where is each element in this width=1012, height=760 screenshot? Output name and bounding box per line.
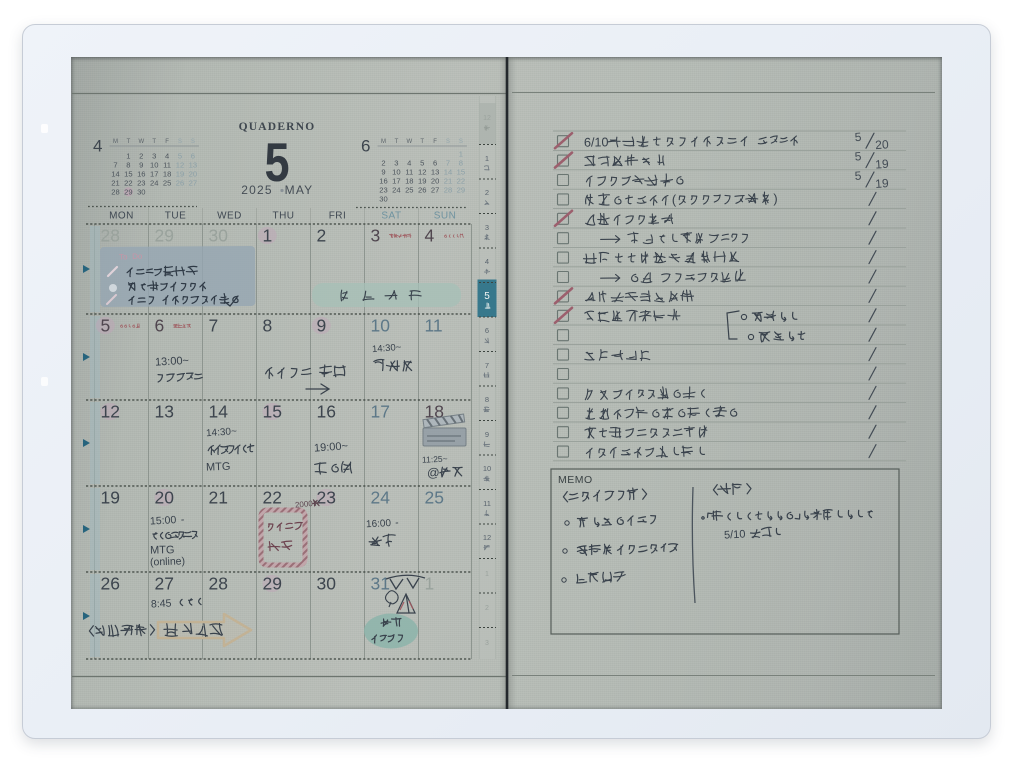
svg-text:20: 20 (875, 137, 890, 152)
svg-text:5: 5 (854, 149, 862, 163)
svg-text:18: 18 (163, 170, 171, 179)
svg-text:5: 5 (101, 316, 111, 336)
svg-text:30: 30 (317, 574, 337, 594)
svg-text:1: 1 (485, 154, 489, 163)
svg-text:23: 23 (137, 179, 145, 188)
svg-text:22: 22 (263, 488, 282, 508)
svg-text:13:00~: 13:00~ (155, 355, 190, 369)
svg-text:M: M (381, 139, 386, 145)
svg-text:27: 27 (155, 574, 174, 594)
svg-text:26: 26 (101, 574, 120, 594)
svg-text:8: 8 (263, 316, 273, 336)
svg-text:28: 28 (101, 226, 120, 246)
svg-text:9: 9 (317, 316, 327, 336)
svg-text:6: 6 (433, 159, 437, 168)
svg-text:S: S (459, 139, 463, 145)
svg-text:3: 3 (371, 226, 381, 246)
svg-text:9: 9 (485, 430, 489, 439)
svg-text:): ) (773, 191, 778, 206)
svg-text:15: 15 (457, 168, 465, 177)
svg-text:8: 8 (485, 395, 489, 404)
svg-text:2: 2 (317, 226, 327, 246)
svg-text:T: T (395, 139, 399, 145)
svg-text:21: 21 (209, 488, 228, 508)
svg-text:22: 22 (124, 179, 132, 188)
svg-text:5/10: 5/10 (724, 528, 746, 541)
svg-text:2: 2 (485, 605, 489, 612)
svg-text:@: @ (427, 466, 440, 480)
svg-text:T: T (420, 139, 424, 145)
svg-text:TUE: TUE (165, 211, 187, 222)
svg-text:6: 6 (485, 326, 489, 335)
svg-text:17: 17 (392, 177, 400, 186)
svg-text:11:25~: 11:25~ (422, 453, 448, 464)
svg-text:22: 22 (457, 177, 465, 186)
svg-text:10: 10 (483, 464, 491, 473)
svg-text:12: 12 (483, 115, 491, 122)
svg-text:10: 10 (392, 168, 400, 177)
svg-text:1: 1 (425, 574, 435, 594)
svg-text:24: 24 (150, 179, 158, 188)
svg-text:16: 16 (137, 170, 145, 179)
svg-text:29: 29 (457, 186, 465, 195)
svg-text:4: 4 (407, 159, 411, 168)
svg-text:19:00~: 19:00~ (314, 440, 349, 454)
svg-text:24: 24 (392, 186, 400, 195)
svg-text:5: 5 (854, 130, 862, 144)
svg-text:1: 1 (126, 152, 130, 161)
svg-text:M: M (113, 139, 118, 145)
svg-text:11: 11 (483, 499, 491, 508)
svg-text:23: 23 (379, 186, 387, 195)
svg-text:20: 20 (431, 177, 439, 186)
svg-text:31: 31 (371, 574, 390, 594)
svg-text:14: 14 (444, 168, 452, 177)
svg-text:13: 13 (431, 168, 439, 177)
svg-text:27: 27 (189, 179, 197, 188)
svg-text:2: 2 (381, 159, 385, 168)
svg-text:11: 11 (405, 168, 413, 177)
svg-text:25: 25 (405, 186, 413, 195)
svg-text:14:30~: 14:30~ (372, 342, 402, 355)
svg-text:11: 11 (425, 316, 443, 336)
svg-text:5: 5 (854, 169, 862, 183)
svg-text:MAY: MAY (285, 183, 314, 197)
svg-text:19: 19 (176, 170, 184, 179)
svg-text:(: ( (672, 192, 677, 207)
svg-text:12: 12 (418, 168, 426, 177)
svg-text:6: 6 (155, 316, 165, 336)
svg-text:8: 8 (459, 159, 463, 168)
svg-text:13: 13 (189, 161, 197, 170)
svg-text:T: T (127, 139, 131, 145)
svg-text:F: F (165, 139, 169, 145)
svg-text:29: 29 (155, 226, 174, 246)
svg-text:Do: Do (132, 252, 143, 261)
svg-text:28: 28 (209, 574, 228, 594)
svg-text:8:45: 8:45 (151, 597, 172, 610)
svg-text:15: 15 (124, 170, 132, 179)
svg-text:FRI: FRI (329, 211, 347, 222)
svg-text:T: T (152, 139, 156, 145)
svg-text:25: 25 (425, 488, 444, 508)
svg-text:MON: MON (109, 211, 134, 222)
svg-text:THU: THU (272, 211, 294, 222)
svg-text:5: 5 (420, 159, 424, 168)
svg-text:14: 14 (209, 402, 229, 422)
svg-text:1: 1 (459, 150, 463, 159)
svg-text:30: 30 (379, 195, 387, 204)
svg-text:12: 12 (483, 533, 491, 542)
svg-text:4: 4 (425, 226, 435, 246)
svg-text:10: 10 (150, 161, 158, 170)
svg-text:7: 7 (113, 161, 117, 170)
svg-text:16: 16 (379, 177, 387, 186)
svg-text:19: 19 (101, 488, 120, 508)
svg-text:MTG: MTG (206, 461, 231, 474)
svg-text:3: 3 (152, 152, 156, 161)
svg-text:4: 4 (485, 257, 489, 266)
svg-text:8: 8 (126, 161, 130, 170)
svg-text:S: S (178, 139, 182, 145)
svg-text:(online): (online) (150, 555, 185, 568)
svg-text:WED: WED (217, 211, 242, 222)
svg-text:17: 17 (150, 170, 158, 179)
svg-text:16:00: 16:00 (366, 518, 392, 530)
svg-text:21: 21 (444, 177, 452, 186)
svg-text:S: S (191, 139, 195, 145)
svg-text:W: W (406, 139, 412, 145)
svg-text:5: 5 (484, 291, 490, 302)
svg-text:21: 21 (111, 179, 119, 188)
svg-text:9: 9 (139, 161, 143, 170)
svg-text:SUN: SUN (434, 211, 457, 222)
svg-text:12: 12 (101, 402, 120, 422)
svg-text:13: 13 (155, 402, 174, 422)
svg-text:7: 7 (485, 361, 489, 370)
svg-text:25: 25 (163, 179, 171, 188)
svg-text:28: 28 (444, 186, 452, 195)
svg-text:1: 1 (485, 571, 489, 578)
svg-text:19: 19 (875, 157, 890, 172)
svg-text:MEMO: MEMO (558, 474, 593, 486)
svg-text:F: F (433, 139, 437, 145)
svg-text:30: 30 (137, 188, 145, 197)
svg-text:S: S (446, 139, 450, 145)
svg-text:3: 3 (485, 640, 489, 647)
svg-text:2025: 2025 (241, 183, 273, 197)
svg-text:10: 10 (371, 316, 391, 336)
svg-text:19: 19 (418, 177, 426, 186)
svg-text:-: - (180, 514, 185, 526)
svg-text:MTG: MTG (150, 544, 175, 556)
svg-text:2: 2 (139, 152, 143, 161)
svg-text:20: 20 (155, 488, 175, 508)
svg-text:26: 26 (176, 179, 184, 188)
svg-text:28: 28 (111, 188, 119, 197)
svg-text:14:30~: 14:30~ (206, 426, 238, 439)
svg-text:11: 11 (163, 161, 171, 170)
svg-text:14: 14 (111, 170, 119, 179)
svg-text:7: 7 (209, 316, 219, 336)
svg-text:15:00: 15:00 (150, 514, 177, 527)
svg-text:SAT: SAT (381, 211, 401, 222)
svg-text:6: 6 (191, 152, 195, 161)
svg-text:1: 1 (263, 226, 273, 246)
svg-text:16: 16 (317, 402, 336, 422)
svg-text:24: 24 (371, 488, 391, 508)
svg-text:30: 30 (209, 226, 229, 246)
svg-text:15: 15 (263, 402, 282, 422)
svg-text:29: 29 (263, 574, 282, 594)
svg-text:2000: 2000 (295, 499, 314, 510)
svg-text:27: 27 (431, 186, 439, 195)
svg-text:2: 2 (485, 188, 489, 197)
svg-text:6/10: 6/10 (584, 135, 609, 149)
svg-text:To: To (119, 252, 128, 261)
svg-text:23: 23 (317, 488, 336, 508)
svg-text:3: 3 (485, 223, 489, 232)
svg-text:12: 12 (176, 161, 184, 170)
svg-text:5: 5 (178, 152, 182, 161)
svg-text:W: W (138, 139, 144, 145)
svg-text:9: 9 (381, 168, 385, 177)
svg-text:26: 26 (418, 186, 426, 195)
svg-text:3: 3 (394, 159, 398, 168)
svg-text:-: - (395, 518, 399, 529)
svg-text:6: 6 (361, 137, 370, 156)
svg-text:7: 7 (446, 159, 450, 168)
svg-text:18: 18 (405, 177, 413, 186)
svg-text:29: 29 (124, 188, 132, 197)
svg-text:17: 17 (371, 402, 390, 422)
svg-text:4: 4 (165, 152, 169, 161)
svg-text:4: 4 (93, 137, 102, 156)
svg-text:19: 19 (875, 176, 890, 191)
svg-text:20: 20 (189, 170, 197, 179)
